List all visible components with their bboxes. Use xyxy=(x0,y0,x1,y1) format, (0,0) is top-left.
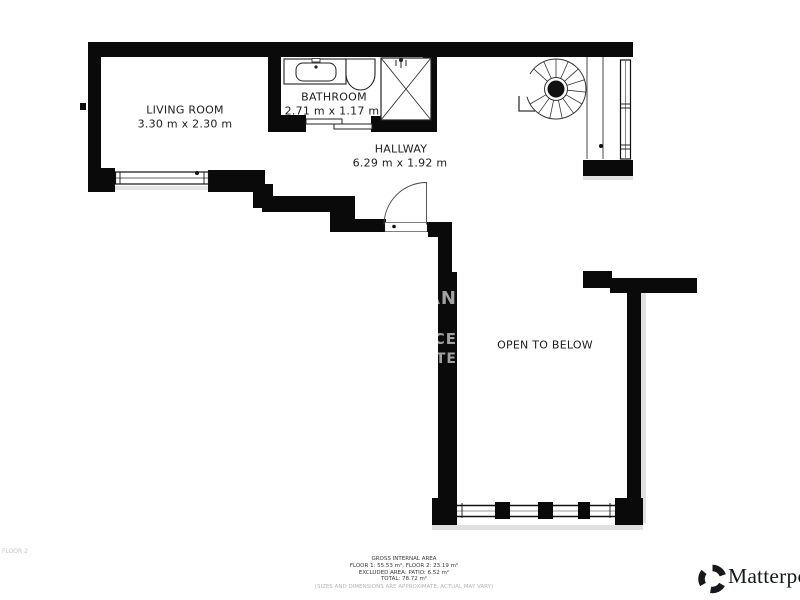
watermark-fragment: AN xyxy=(426,288,457,309)
area-summary: GROSS INTERNAL AREA FLOOR 1: 55.53 m², F… xyxy=(315,556,493,591)
door-swing-arc xyxy=(384,183,427,225)
floor-plan-page: LIVING ROOM 3.30 m x 2.30 m BATHROOM 2.7… xyxy=(0,0,800,600)
window-band-bottom xyxy=(457,502,615,519)
matterport-wordmark: Matterport xyxy=(728,564,800,589)
window-living-room xyxy=(116,172,209,184)
stair-landing-lines xyxy=(587,57,603,159)
shower xyxy=(381,58,431,120)
wall-open-below-right xyxy=(627,288,641,523)
area-summary-floors: FLOOR 1: 55.53 m², FLOOR 2: 23.19 m² xyxy=(315,563,493,570)
floor-label: FLOOR 2 xyxy=(2,548,28,555)
floor-plan-drawing xyxy=(0,0,800,600)
area-summary-disclaimer: (SIZES AND DIMENSIONS ARE APPROXIMATE, A… xyxy=(315,584,493,591)
room-dims-living-room: 3.30 m x 2.30 m xyxy=(138,118,233,131)
wall-left xyxy=(88,42,101,184)
room-label-open-to-below: OPEN TO BELOW xyxy=(497,339,593,352)
sliding-door-bathroom xyxy=(306,119,372,129)
window-stair-room xyxy=(621,60,631,159)
scan-marker-icon xyxy=(392,225,396,229)
area-summary-total: TOTAL: 78.72 m² xyxy=(315,576,493,583)
matterport-pinwheel-icon xyxy=(694,558,728,596)
watermark-fragment: TE xyxy=(436,351,457,367)
room-dims-hallway: 6.29 m x 1.92 m xyxy=(353,157,448,170)
room-label-hallway: HALLWAY xyxy=(375,143,427,156)
scan-marker-icon xyxy=(599,144,603,148)
wall-open-below-left xyxy=(438,272,457,523)
room-label-bathroom: BATHROOM xyxy=(301,91,367,104)
area-summary-title: GROSS INTERNAL AREA xyxy=(315,556,493,563)
room-label-living-room: LIVING ROOM xyxy=(146,104,224,117)
scan-marker-icon xyxy=(195,171,199,175)
vanity-sink xyxy=(284,59,346,85)
spiral-staircase xyxy=(519,59,586,119)
matterport-logo: Matterport xyxy=(694,558,800,596)
room-dims-bathroom: 2.71 m x 1.17 m xyxy=(285,105,380,118)
toilet xyxy=(346,59,375,90)
wall-top xyxy=(88,42,633,57)
door-hallway xyxy=(384,183,428,233)
watermark-fragment: CE xyxy=(434,330,457,348)
